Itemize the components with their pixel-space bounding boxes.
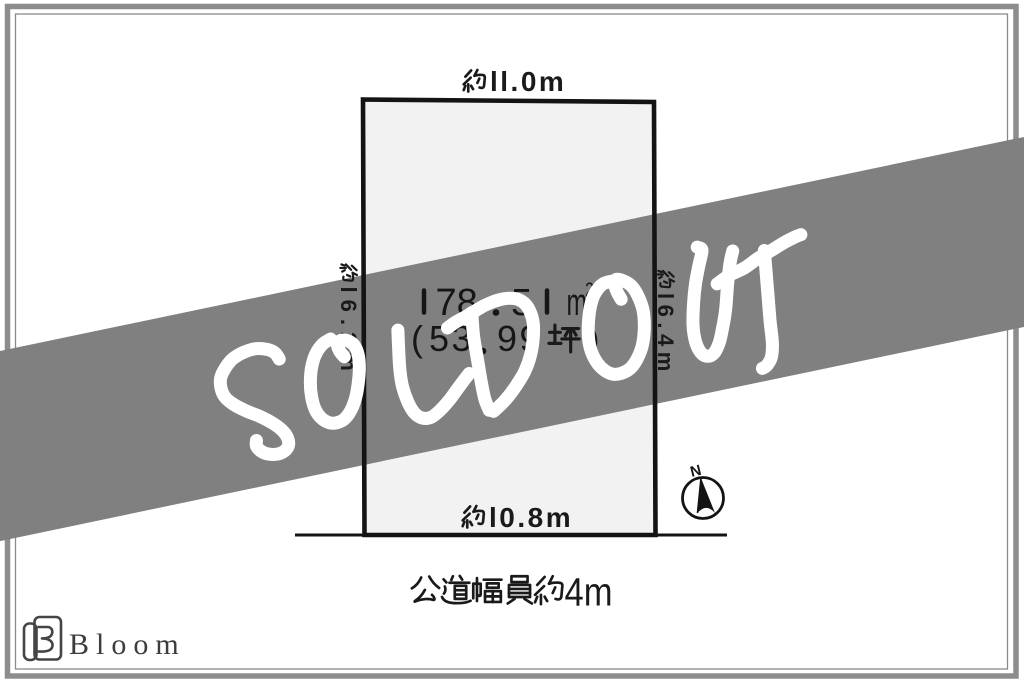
svg-text:4m: 4m bbox=[565, 571, 613, 615]
svg-text:ll.0m: ll.0m bbox=[490, 66, 566, 97]
svg-text:(: ( bbox=[411, 318, 423, 359]
svg-text:l6.4m: l6.4m bbox=[653, 293, 678, 377]
svg-text:l0.8m: l0.8m bbox=[489, 502, 573, 533]
svg-text:Bloom: Bloom bbox=[69, 628, 186, 661]
